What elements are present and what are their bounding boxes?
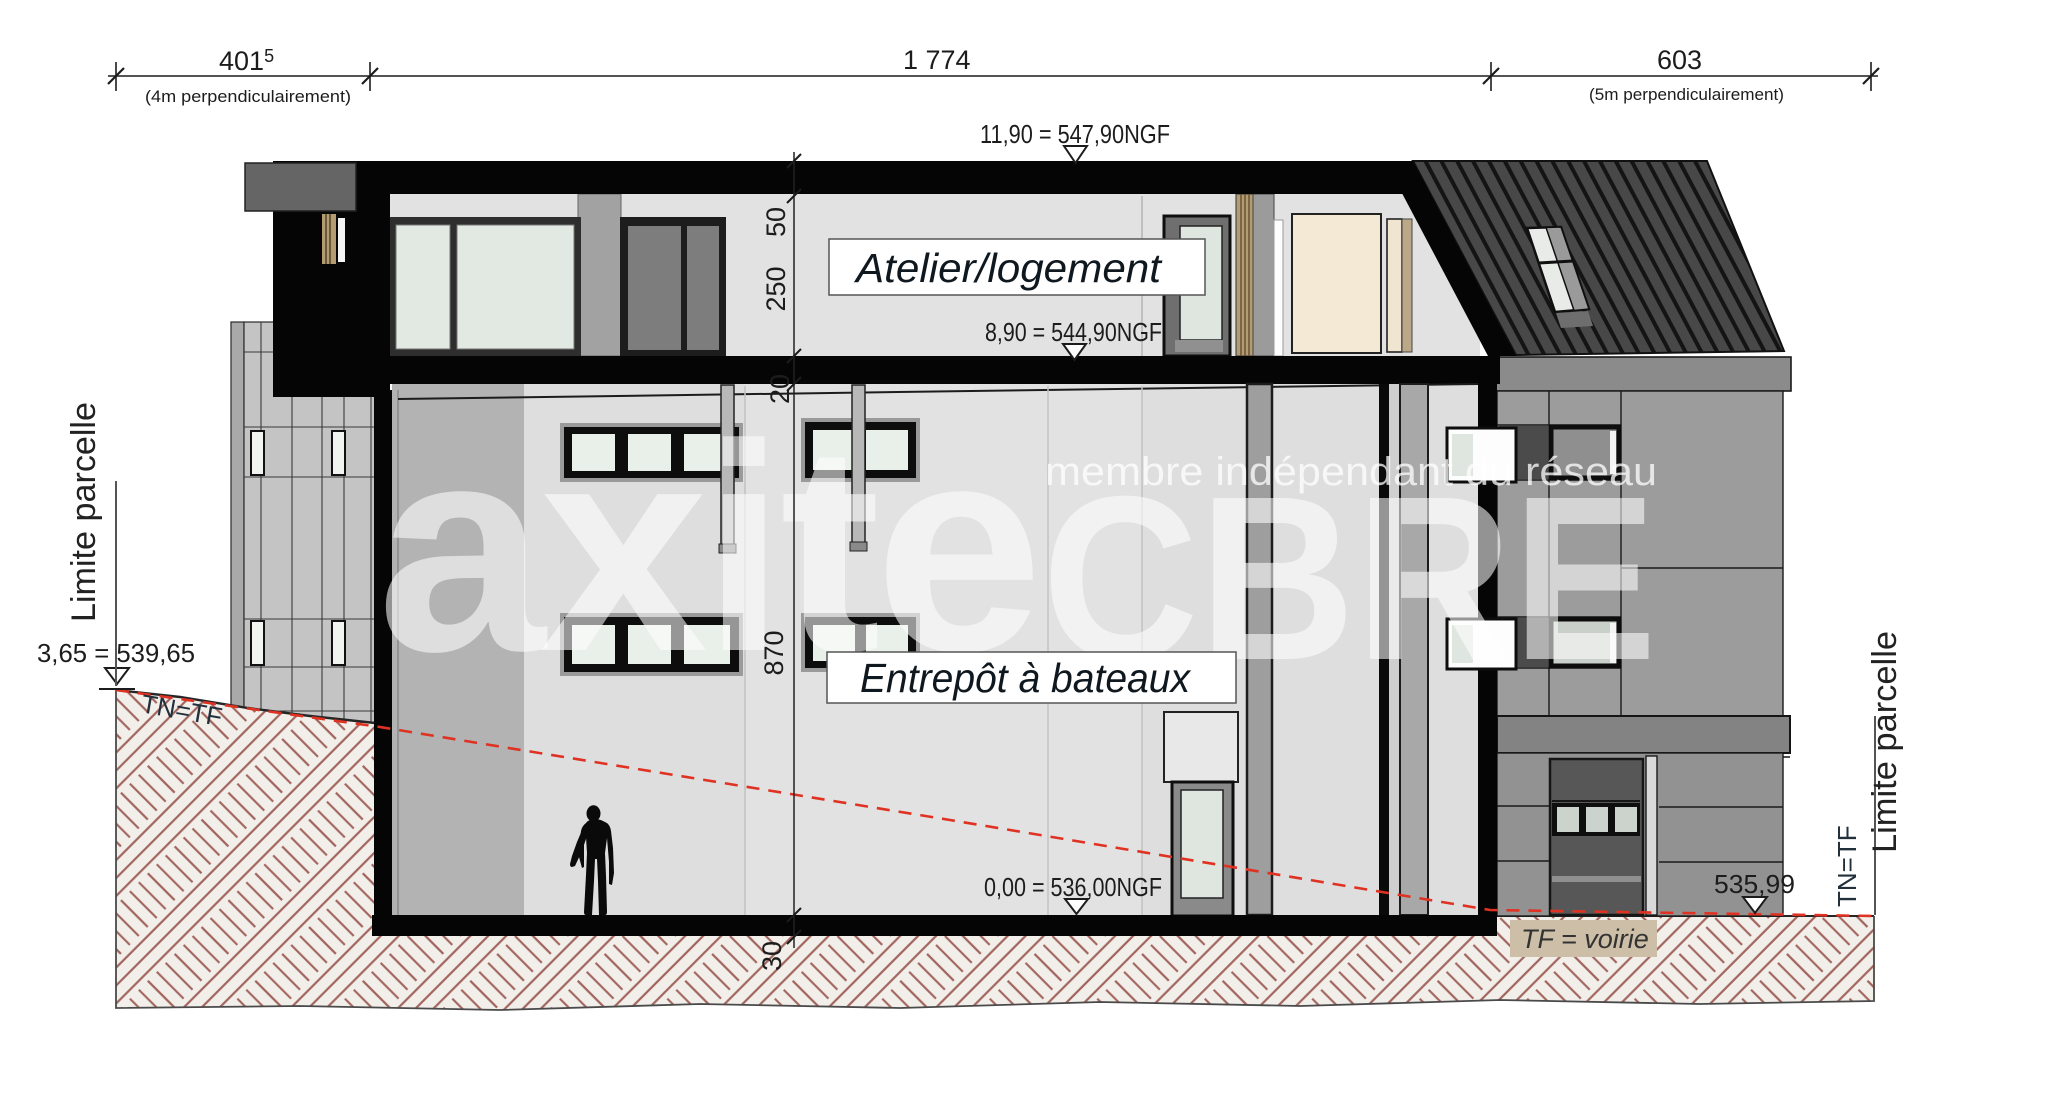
svg-text:603: 603 <box>1657 45 1702 75</box>
svg-text:Atelier/logement: Atelier/logement <box>853 245 1163 291</box>
svg-text:870: 870 <box>759 630 789 675</box>
svg-text:50: 50 <box>761 207 791 237</box>
svg-text:8,90 = 544,90NGF: 8,90 = 544,90NGF <box>985 317 1162 347</box>
svg-text:11,90 = 547,90NGF: 11,90 = 547,90NGF <box>980 119 1170 149</box>
svg-text:Limite parcelle: Limite parcelle <box>1866 631 1904 853</box>
svg-text:Entrepôt à bateaux: Entrepôt à bateaux <box>860 655 1191 701</box>
svg-text:30: 30 <box>757 941 787 971</box>
svg-text:TN=TF: TN=TF <box>1832 825 1862 907</box>
svg-text:(5m perpendiculairement): (5m perpendiculairement) <box>1589 85 1784 104</box>
svg-text:(4m perpendiculairement): (4m perpendiculairement) <box>145 87 351 106</box>
svg-text:TF = voirie: TF = voirie <box>1521 924 1649 954</box>
svg-text:535,99: 535,99 <box>1714 869 1795 899</box>
svg-text:0,00 = 536,00NGF: 0,00 = 536,00NGF <box>984 872 1162 902</box>
svg-text:Limite parcelle: Limite parcelle <box>65 402 103 622</box>
svg-text:1 774: 1 774 <box>903 45 971 75</box>
svg-text:membre indépendant du réseau: membre indépendant du réseau <box>1045 450 1657 494</box>
svg-text:250: 250 <box>761 266 791 311</box>
svg-text:20: 20 <box>765 374 795 404</box>
